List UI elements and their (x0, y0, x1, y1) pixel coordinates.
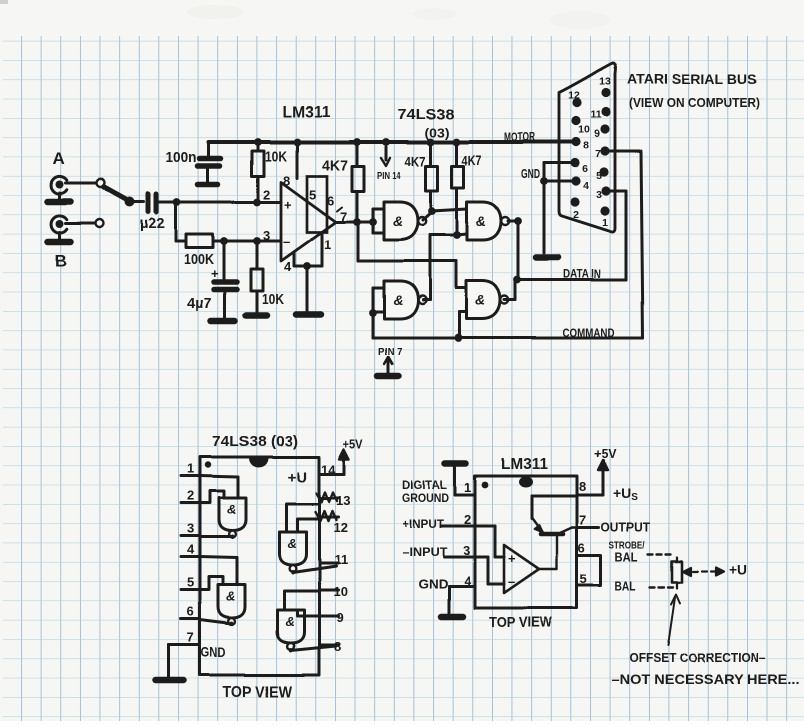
svg-text:3: 3 (187, 521, 194, 536)
svg-text:74LS38 (03): 74LS38 (03) (212, 433, 298, 450)
svg-text:PIN 14: PIN 14 (377, 171, 401, 182)
svg-text:COMMAND: COMMAND (563, 328, 615, 340)
svg-text:–: – (283, 234, 290, 249)
svg-text:4K7: 4K7 (462, 153, 482, 168)
svg-text:12: 12 (333, 520, 347, 535)
svg-text:1: 1 (187, 461, 194, 476)
svg-text:100n: 100n (166, 149, 197, 166)
svg-text:5: 5 (187, 575, 194, 590)
svg-text:4K7: 4K7 (322, 157, 348, 174)
svg-text:+5V: +5V (343, 437, 364, 451)
svg-text:MOTOR: MOTOR (504, 132, 536, 144)
svg-text:8: 8 (579, 479, 586, 494)
svg-text:BAL: BAL (615, 579, 636, 593)
svg-text:–NOT NECESSARY HERE...: –NOT NECESSARY HERE... (611, 671, 800, 687)
svg-text:3: 3 (463, 543, 470, 558)
svg-text:TOP VIEW: TOP VIEW (223, 684, 292, 701)
svg-text:+: + (211, 266, 219, 281)
svg-text:6: 6 (187, 604, 194, 619)
svg-text:4K7: 4K7 (405, 154, 426, 169)
svg-text:&: & (393, 213, 403, 229)
svg-text:7: 7 (579, 512, 586, 527)
svg-text:+U: +U (287, 469, 307, 486)
svg-text:10K: 10K (265, 148, 287, 165)
svg-text:11: 11 (590, 109, 601, 121)
svg-text:–: – (508, 574, 515, 589)
svg-text:4: 4 (464, 573, 472, 588)
svg-text:B: B (55, 251, 67, 270)
svg-text:DATA IN: DATA IN (563, 269, 601, 281)
svg-text:µ22: µ22 (140, 215, 165, 232)
svg-text:&: & (475, 292, 485, 308)
svg-text:13: 13 (599, 76, 611, 88)
svg-text:1: 1 (464, 480, 471, 495)
svg-text:10: 10 (333, 584, 347, 599)
svg-text:DIGITAL: DIGITAL (402, 480, 447, 492)
svg-text:+: + (284, 197, 292, 212)
svg-text:&: & (227, 502, 236, 517)
svg-text:3: 3 (263, 228, 270, 243)
svg-text:GND: GND (521, 167, 540, 181)
svg-text:+5V: +5V (594, 447, 617, 461)
svg-text:8: 8 (583, 140, 589, 152)
svg-text:9: 9 (336, 610, 343, 625)
svg-text:1: 1 (324, 237, 331, 252)
svg-text:+: + (508, 551, 516, 566)
svg-text:4: 4 (284, 259, 292, 274)
svg-text:12: 12 (568, 90, 580, 102)
svg-text:&: & (226, 589, 235, 604)
svg-text:2: 2 (263, 187, 270, 202)
svg-text:74LS38: 74LS38 (398, 106, 455, 123)
svg-text:&: & (476, 213, 486, 229)
svg-text:6: 6 (327, 193, 334, 208)
svg-text:10: 10 (578, 124, 590, 136)
svg-text:LM311: LM311 (501, 456, 548, 473)
svg-text:(03): (03) (425, 125, 450, 140)
svg-text:TOP VIEW: TOP VIEW (489, 614, 553, 631)
svg-text:+U: +U (729, 562, 747, 577)
svg-text:2: 2 (573, 209, 579, 221)
svg-text:–INPUT: –INPUT (402, 547, 447, 559)
svg-text:4µ7: 4µ7 (187, 295, 212, 312)
svg-text:OUTPUT: OUTPUT (601, 519, 650, 534)
svg-text:GND: GND (418, 577, 448, 591)
svg-text:2: 2 (187, 488, 194, 503)
svg-text:5: 5 (309, 187, 316, 202)
svg-text:100K: 100K (184, 251, 214, 268)
svg-text:PIN 7: PIN 7 (378, 347, 402, 358)
svg-text:6: 6 (578, 540, 585, 555)
svg-text:OFFSET CORRECTION–: OFFSET CORRECTION– (629, 650, 766, 665)
svg-text:2: 2 (464, 512, 471, 527)
svg-text:&: & (393, 292, 403, 308)
svg-text:A: A (53, 149, 65, 168)
svg-text:BAL: BAL (615, 550, 638, 564)
svg-text:5: 5 (580, 571, 587, 586)
svg-text:&: & (287, 536, 296, 551)
svg-text:8: 8 (283, 173, 290, 188)
svg-text:GND: GND (201, 645, 226, 660)
svg-text:3: 3 (596, 189, 602, 201)
svg-text:ATARI SERIAL BUS: ATARI SERIAL BUS (627, 71, 757, 87)
svg-text:&: & (285, 614, 294, 629)
svg-text:+INPUT: +INPUT (402, 519, 444, 531)
svg-text:(VIEW ON COMPUTER): (VIEW ON COMPUTER) (629, 96, 760, 110)
svg-text:4: 4 (583, 180, 589, 192)
svg-text:6: 6 (582, 163, 588, 175)
svg-text:1: 1 (602, 217, 608, 229)
svg-text:LM311: LM311 (282, 104, 330, 121)
svg-text:5: 5 (596, 170, 602, 182)
svg-text:7: 7 (187, 630, 194, 645)
svg-text:10K: 10K (262, 291, 284, 308)
svg-text:4: 4 (187, 542, 195, 557)
svg-text:9: 9 (594, 128, 600, 140)
svg-text:GROUND: GROUND (402, 493, 449, 505)
svg-text:7: 7 (595, 148, 601, 160)
svg-text:13: 13 (336, 493, 350, 508)
